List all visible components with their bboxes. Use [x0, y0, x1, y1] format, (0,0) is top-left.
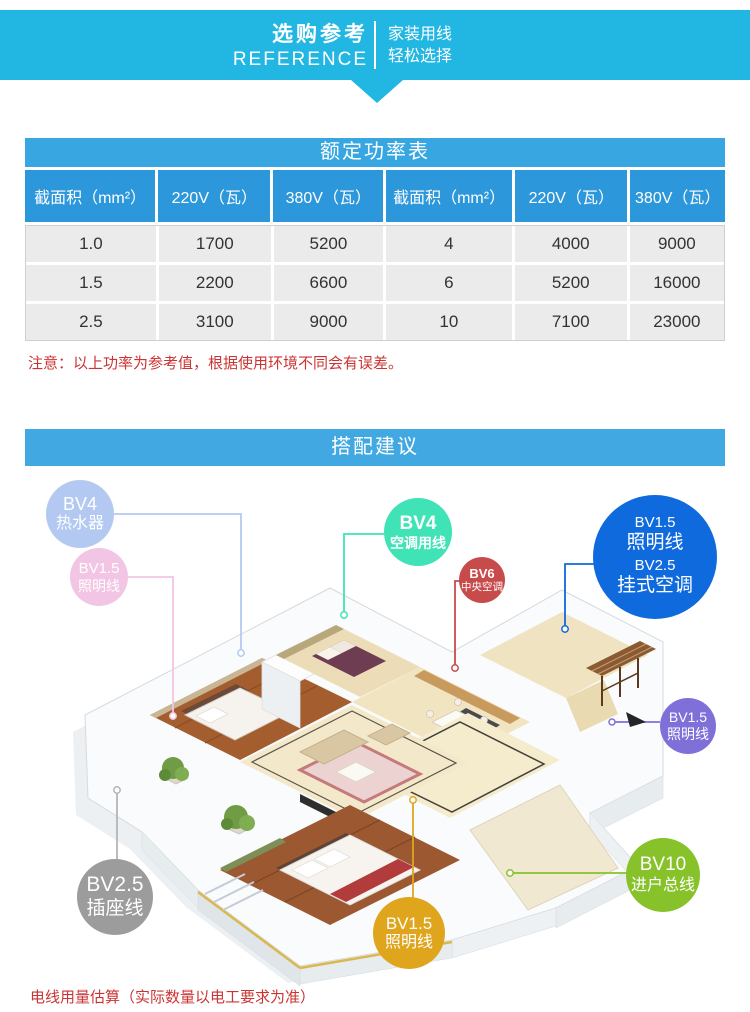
table-header-row: 截面积（mm²） 220V（瓦） 380V（瓦） 截面积（mm²） 220V（瓦…	[25, 170, 725, 222]
table-cell: 6	[386, 265, 512, 301]
table-cell: 5200	[274, 226, 383, 262]
header-title-cn: 选购参考	[0, 22, 368, 48]
floorplan-illustration: BV4 热水器 BV1.5 照明线 BV4 空调用线 BV6 中央空调 BV1.…	[0, 470, 750, 1012]
table-cell: 2.5	[26, 304, 156, 340]
label-text: BV1.5	[669, 709, 707, 726]
table-cell: 9000	[630, 226, 724, 262]
label-text: BV2.5	[86, 873, 143, 898]
label-bubble-central-ac: BV6 中央空调	[459, 557, 505, 603]
label-text: 中央空调	[461, 581, 503, 593]
label-text: 热水器	[56, 515, 104, 534]
label-text: BV10	[640, 854, 686, 876]
label-text: 空调用线	[390, 535, 446, 552]
label-bubble-lighting-gold: BV1.5 照明线	[373, 897, 445, 969]
label-bubble-lighting-purple: BV1.5 照明线	[660, 698, 716, 754]
table-header-cell: 380V（瓦）	[273, 170, 383, 222]
label-text: 插座线	[86, 898, 143, 920]
rated-power-table: 额定功率表 截面积（mm²） 220V（瓦） 380V（瓦） 截面积（mm²） …	[25, 138, 725, 341]
header-title-block: 选购参考 REFERENCE	[0, 22, 368, 72]
header-divider	[374, 21, 376, 69]
table-header-cell: 截面积（mm²）	[25, 170, 155, 222]
header-title-en: REFERENCE	[0, 48, 368, 72]
label-bubble-socket-wire: BV2.5 插座线	[77, 859, 153, 935]
table-cell: 1700	[159, 226, 271, 262]
label-bubble-lighting-pink: BV1.5 照明线	[70, 548, 128, 606]
label-text: BV4	[400, 513, 437, 535]
label-bubble-lighting-and-wall-ac: BV1.5 照明线 BV2.5 挂式空调	[593, 495, 717, 619]
table-cell: 1.5	[26, 265, 156, 301]
header-pointer-triangle	[351, 80, 403, 103]
header-tagline: 家装用线 轻松选择	[388, 24, 452, 68]
label-bubble-water-heater: BV4 热水器	[46, 480, 114, 548]
label-bubble-ac-wire: BV4 空调用线	[384, 498, 452, 566]
table-body: 1.0 1700 5200 4 4000 9000 1.5 2200 6600 …	[25, 225, 725, 341]
page: 选购参考 REFERENCE 家装用线 轻松选择 额定功率表 截面积（mm²） …	[0, 0, 750, 1012]
table-row: 1.5 2200 6600 6 5200 16000	[26, 265, 724, 301]
label-text: 照明线	[385, 934, 433, 953]
label-text: BV2.5	[635, 557, 676, 575]
label-text: BV6	[469, 566, 494, 581]
table-cell: 10	[386, 304, 512, 340]
table-cell: 4	[386, 226, 512, 262]
table-cell: 9000	[274, 304, 383, 340]
table-cell: 6600	[274, 265, 383, 301]
label-text: BV4	[63, 494, 97, 515]
table-cell: 16000	[630, 265, 724, 301]
table-header-cell: 380V（瓦）	[630, 170, 725, 222]
header-tagline-line1: 家装用线	[388, 24, 452, 46]
table-cell: 1.0	[26, 226, 156, 262]
header-tagline-line2: 轻松选择	[388, 46, 452, 68]
table-cell: 7100	[515, 304, 627, 340]
header-banner: 选购参考 REFERENCE 家装用线 轻松选择	[0, 10, 750, 80]
table-header-cell: 220V（瓦）	[158, 170, 270, 222]
label-text: 挂式空调	[617, 575, 693, 597]
label-text: 进户总线	[631, 877, 695, 896]
label-text: 照明线	[626, 532, 683, 554]
table-row: 1.0 1700 5200 4 4000 9000	[26, 226, 724, 262]
table-cell: 4000	[515, 226, 627, 262]
label-text: 照明线	[78, 578, 120, 595]
table-title: 额定功率表	[25, 138, 725, 167]
table-cell: 3100	[159, 304, 271, 340]
table-header-cell: 220V（瓦）	[515, 170, 627, 222]
table-cell: 5200	[515, 265, 627, 301]
estimation-footnote: 电线用量估算（实际数量以电工要求为准）	[30, 986, 315, 1007]
label-text: 照明线	[667, 726, 709, 743]
label-bubble-main-incoming: BV10 进户总线	[626, 838, 700, 912]
table-cell: 2200	[159, 265, 271, 301]
table-row: 2.5 3100 9000 10 7100 23000	[26, 304, 724, 340]
label-text: BV1.5	[386, 914, 432, 934]
suggestion-banner: 搭配建议	[25, 429, 725, 466]
label-text: BV1.5	[635, 514, 676, 532]
label-text: BV1.5	[79, 560, 120, 578]
table-note: 注意：以上功率为参考值，根据使用环境不同会有误差。	[28, 352, 403, 373]
table-cell: 23000	[630, 304, 724, 340]
table-header-cell: 截面积（mm²）	[386, 170, 512, 222]
